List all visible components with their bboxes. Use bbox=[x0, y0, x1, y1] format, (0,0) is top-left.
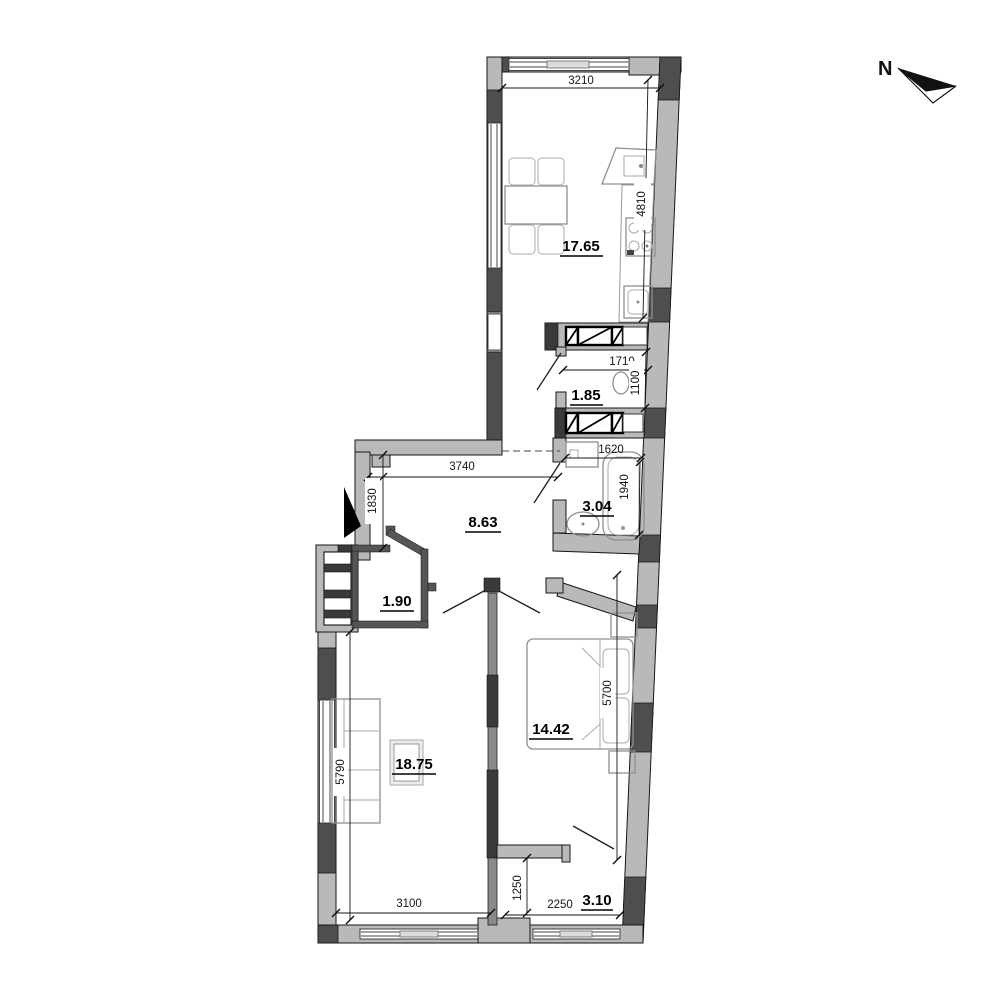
shaft-duct bbox=[324, 610, 351, 618]
north-arrow: N bbox=[878, 58, 956, 103]
dim-label: 1940 bbox=[619, 474, 631, 500]
wc-door-swing bbox=[537, 353, 561, 390]
dim-label: 5700 bbox=[602, 680, 614, 706]
wall-hall-top bbox=[355, 440, 502, 455]
north-label: N bbox=[878, 58, 892, 80]
dim-label: 3740 bbox=[449, 461, 475, 473]
area-label-bedroom: 14.42 bbox=[532, 721, 570, 738]
window-sill bbox=[547, 61, 589, 68]
area-label-wc: 1.85 bbox=[571, 387, 600, 404]
area-label-wardrobe: 1.90 bbox=[382, 593, 411, 610]
window-kitchen bbox=[488, 123, 501, 268]
floor-plan-page: 3210 4810 1710 1100 1620 bbox=[0, 0, 1000, 1000]
utility-shaft bbox=[316, 545, 358, 632]
area-label-kitchen: 17.65 bbox=[562, 238, 600, 255]
dim-label: 1250 bbox=[512, 875, 524, 901]
area-label-living: 18.75 bbox=[395, 756, 433, 773]
shaft-duct bbox=[324, 564, 351, 572]
dim-label: 3210 bbox=[568, 75, 594, 87]
area-label-hall: 8.63 bbox=[468, 514, 497, 531]
wall-bath-bottom bbox=[553, 533, 640, 554]
dim-label: 1100 bbox=[630, 371, 642, 396]
dim-label: 5790 bbox=[335, 759, 347, 785]
area-label-bathroom: 3.04 bbox=[582, 498, 612, 515]
dim-label: 3100 bbox=[396, 898, 422, 910]
dim-label: 1830 bbox=[367, 488, 379, 514]
shaft-duct bbox=[324, 590, 351, 598]
dim-label: 1620 bbox=[598, 444, 624, 456]
area-label-balcony: 3.10 bbox=[582, 892, 611, 909]
living-door-swing bbox=[443, 591, 484, 613]
floor-plan-drawing: 3210 4810 1710 1100 1620 bbox=[0, 0, 1000, 1000]
dim-label: 4810 bbox=[636, 191, 648, 217]
dim-label: 2250 bbox=[547, 899, 573, 911]
